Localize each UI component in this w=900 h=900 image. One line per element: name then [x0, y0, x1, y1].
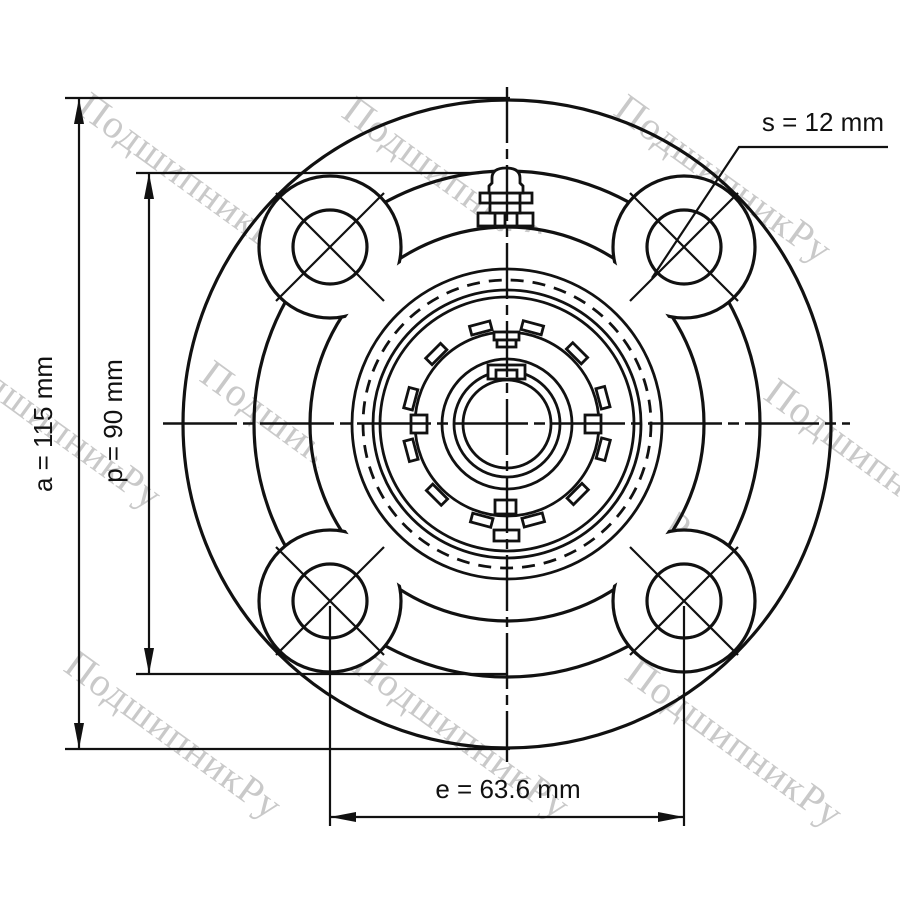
bearing-drawing-svg: ПодшипникРу ПодшипникРу ПодшипникРу Подш…	[0, 0, 900, 900]
watermark-text: ПодшипникРу	[618, 649, 853, 837]
dimension-p-label: p = 90 mm	[98, 359, 128, 483]
dimension-a-label: a = 115 mm	[28, 356, 58, 492]
watermark-text: ПодшипникРу	[0, 331, 171, 519]
arrowhead-down	[144, 648, 154, 674]
locknut-slot-bottom	[495, 500, 516, 514]
arrowhead-left	[330, 812, 356, 822]
bearing-drawing-page: ПодшипникРу ПодшипникРу ПодшипникРу Подш…	[0, 0, 900, 900]
dimension-e-label: e = 63.6 mm	[435, 774, 580, 804]
arrowhead-down	[74, 723, 84, 749]
watermark-text: ПодшипникРу	[57, 641, 292, 829]
grease-fitting-neck	[490, 203, 520, 213]
arrowhead-right	[658, 812, 684, 822]
dimension-s-label: s = 12 mm	[762, 107, 884, 137]
